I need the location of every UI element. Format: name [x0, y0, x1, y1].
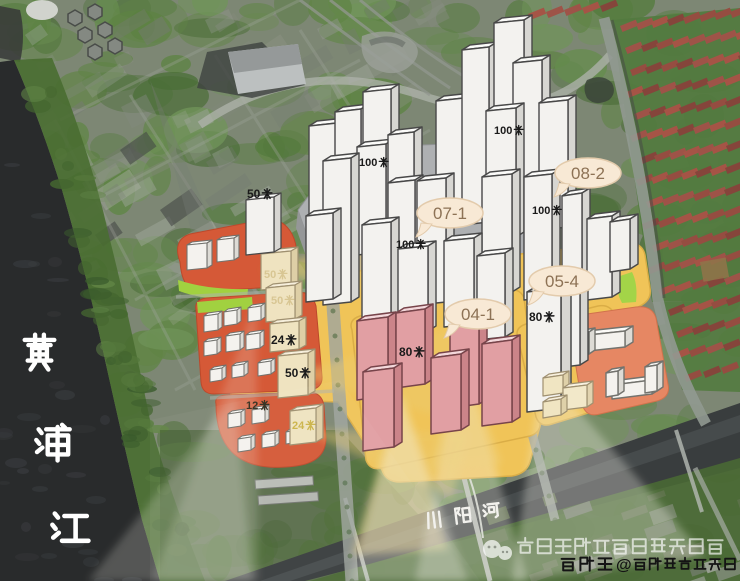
- svg-text:100: 100: [396, 239, 414, 251]
- svg-text:50: 50: [264, 269, 276, 281]
- svg-text:100: 100: [532, 205, 550, 217]
- svg-text:07-1: 07-1: [433, 204, 467, 223]
- svg-text:50: 50: [271, 295, 283, 307]
- svg-text:04-1: 04-1: [461, 305, 495, 324]
- svg-text:24: 24: [292, 420, 305, 432]
- svg-text:50: 50: [247, 187, 261, 201]
- svg-text:100: 100: [494, 125, 512, 137]
- svg-text:80: 80: [399, 345, 413, 359]
- svg-text:80: 80: [529, 310, 543, 324]
- svg-text:08-2: 08-2: [571, 164, 605, 183]
- svg-text:24: 24: [271, 333, 285, 347]
- svg-text:@: @: [616, 557, 632, 574]
- svg-text:12: 12: [246, 400, 258, 412]
- svg-text:50: 50: [285, 366, 299, 380]
- svg-text:100: 100: [359, 157, 377, 169]
- svg-text:05-4: 05-4: [545, 272, 579, 291]
